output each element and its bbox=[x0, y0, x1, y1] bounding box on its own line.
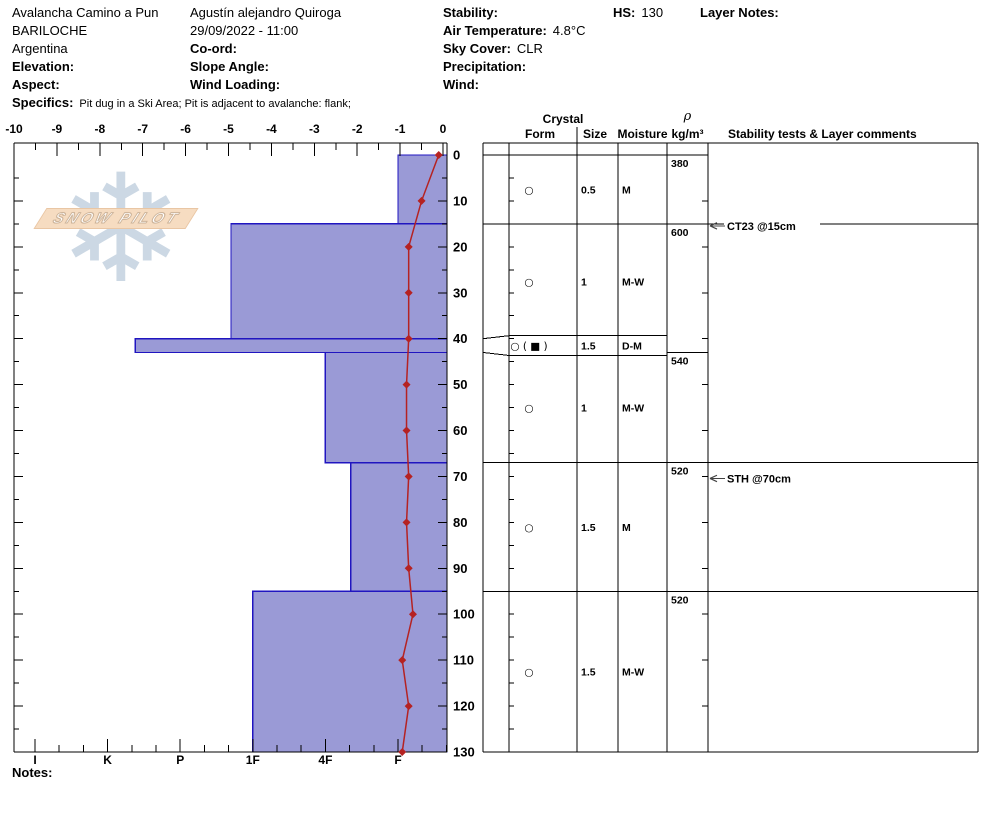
depth-label: 30 bbox=[453, 285, 467, 300]
depth-label: 80 bbox=[453, 515, 467, 530]
depth-label: 60 bbox=[453, 423, 467, 438]
density-value: 380 bbox=[671, 158, 689, 170]
crystal-size-value: 1 bbox=[581, 403, 587, 415]
test-result-label: CT23 @15cm bbox=[727, 221, 796, 233]
snowpilot-report: Avalancha Camino a Pun BARILOCHE Argenti… bbox=[0, 0, 994, 840]
crystal-form-value: ○ ( ■ ) bbox=[510, 341, 547, 353]
layer-bar bbox=[325, 352, 447, 462]
temp-tick-label: -4 bbox=[266, 122, 277, 136]
density-value: 520 bbox=[671, 466, 689, 478]
density-header-units: kg/m³ bbox=[671, 127, 703, 141]
notes-label: Notes: bbox=[12, 765, 52, 780]
crystal-form-value: ○ bbox=[524, 184, 533, 196]
leader-line bbox=[483, 336, 509, 339]
temp-tick-label: -7 bbox=[137, 122, 148, 136]
moisture-value: M-W bbox=[622, 276, 644, 288]
temp-tick-label: -2 bbox=[352, 122, 363, 136]
temp-tick-label: -6 bbox=[180, 122, 191, 136]
depth-label: 0 bbox=[453, 148, 460, 163]
density-value: 600 bbox=[671, 227, 689, 239]
layer-bar bbox=[398, 155, 447, 224]
depth-label: 90 bbox=[453, 561, 467, 576]
temp-tick-label: -5 bbox=[223, 122, 234, 136]
form-header: Form bbox=[525, 127, 555, 141]
layer-bar bbox=[231, 224, 447, 339]
temp-tick-label: -1 bbox=[395, 122, 406, 136]
test-result-label: STH @70cm bbox=[727, 473, 791, 485]
temp-tick-label: 0 bbox=[440, 122, 447, 136]
temp-tick-label: -10 bbox=[5, 122, 23, 136]
crystal-size-value: 1.5 bbox=[581, 667, 596, 679]
depth-label: 20 bbox=[453, 239, 467, 254]
crystal-size-value: 1 bbox=[581, 276, 587, 288]
hardness-label: P bbox=[176, 753, 184, 767]
temp-tick-label: -3 bbox=[309, 122, 320, 136]
temp-tick-label: -8 bbox=[94, 122, 105, 136]
depth-label: 40 bbox=[453, 331, 467, 346]
hardness-label: 4F bbox=[318, 753, 332, 767]
crystal-size-value: 1.5 bbox=[581, 522, 596, 534]
crystal-form-value: ○ bbox=[524, 667, 533, 679]
depth-label: 110 bbox=[453, 653, 474, 668]
density-value: 540 bbox=[671, 355, 689, 367]
density-value: 520 bbox=[671, 594, 689, 606]
moisture-value: D-M bbox=[622, 341, 642, 353]
depth-label: 70 bbox=[453, 469, 467, 484]
depth-label: 130 bbox=[453, 744, 475, 759]
crystal-form-value: ○ bbox=[524, 522, 533, 534]
size-header: Size bbox=[583, 127, 607, 141]
hardness-label: K bbox=[103, 753, 112, 767]
crystal-size-value: 1.5 bbox=[581, 341, 596, 353]
comments-header: Stability tests & Layer comments bbox=[728, 127, 917, 141]
moisture-value: M-W bbox=[622, 667, 644, 679]
hardness-label: F bbox=[394, 753, 401, 767]
moisture-header: Moisture bbox=[617, 127, 667, 141]
moisture-value: M bbox=[622, 184, 631, 196]
layer-bar bbox=[135, 339, 447, 353]
depth-label: 50 bbox=[453, 377, 467, 392]
crystal-form-value: ○ bbox=[524, 403, 533, 415]
leader-line bbox=[483, 352, 509, 355]
depth-label: 10 bbox=[453, 193, 467, 208]
hardness-label: 1F bbox=[246, 753, 260, 767]
snow-profile-chart: -10-9-8-7-6-5-4-3-2-10010203040506070809… bbox=[0, 0, 994, 840]
depth-label: 120 bbox=[453, 699, 475, 714]
layer-bar bbox=[253, 591, 447, 752]
crystal-form-value: ○ bbox=[524, 276, 533, 288]
crystal-size-value: 0.5 bbox=[581, 184, 596, 196]
moisture-value: M bbox=[622, 522, 631, 534]
crystal-header: Crystal bbox=[543, 112, 584, 126]
temp-tick-label: -9 bbox=[52, 122, 63, 136]
layer-bar bbox=[351, 463, 447, 592]
depth-label: 100 bbox=[453, 607, 475, 622]
moisture-value: M-W bbox=[622, 403, 644, 415]
density-header-symbol: ρ bbox=[683, 109, 692, 124]
